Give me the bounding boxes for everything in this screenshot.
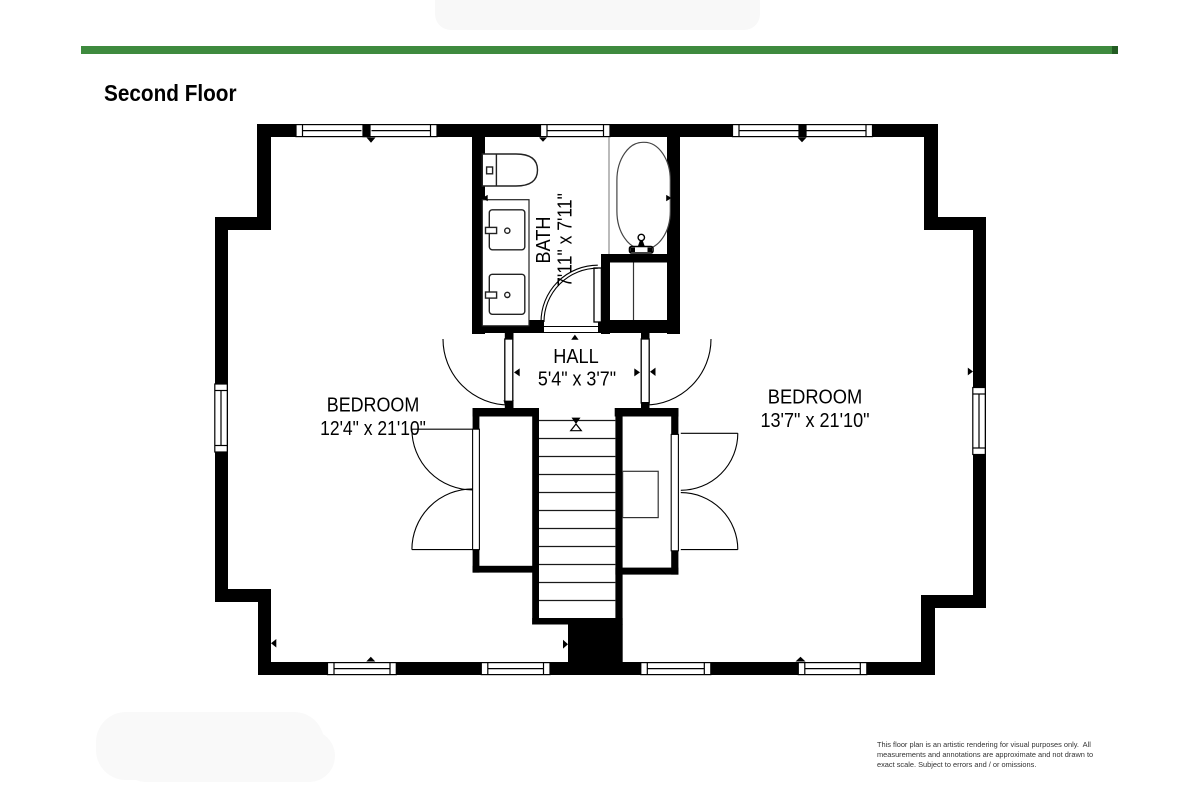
- svg-text:7'11" x 7'11": 7'11" x 7'11": [555, 193, 577, 287]
- svg-text:13'7" x 21'10": 13'7" x 21'10": [760, 410, 869, 432]
- svg-text:5'4" x 3'7": 5'4" x 3'7": [538, 369, 616, 391]
- svg-text:BATH: BATH: [533, 217, 555, 264]
- svg-text:BEDROOM: BEDROOM: [768, 387, 863, 409]
- svg-text:12'4" x 21'10": 12'4" x 21'10": [320, 418, 426, 440]
- svg-text:HALL: HALL: [553, 346, 598, 368]
- svg-text:BEDROOM: BEDROOM: [327, 395, 420, 417]
